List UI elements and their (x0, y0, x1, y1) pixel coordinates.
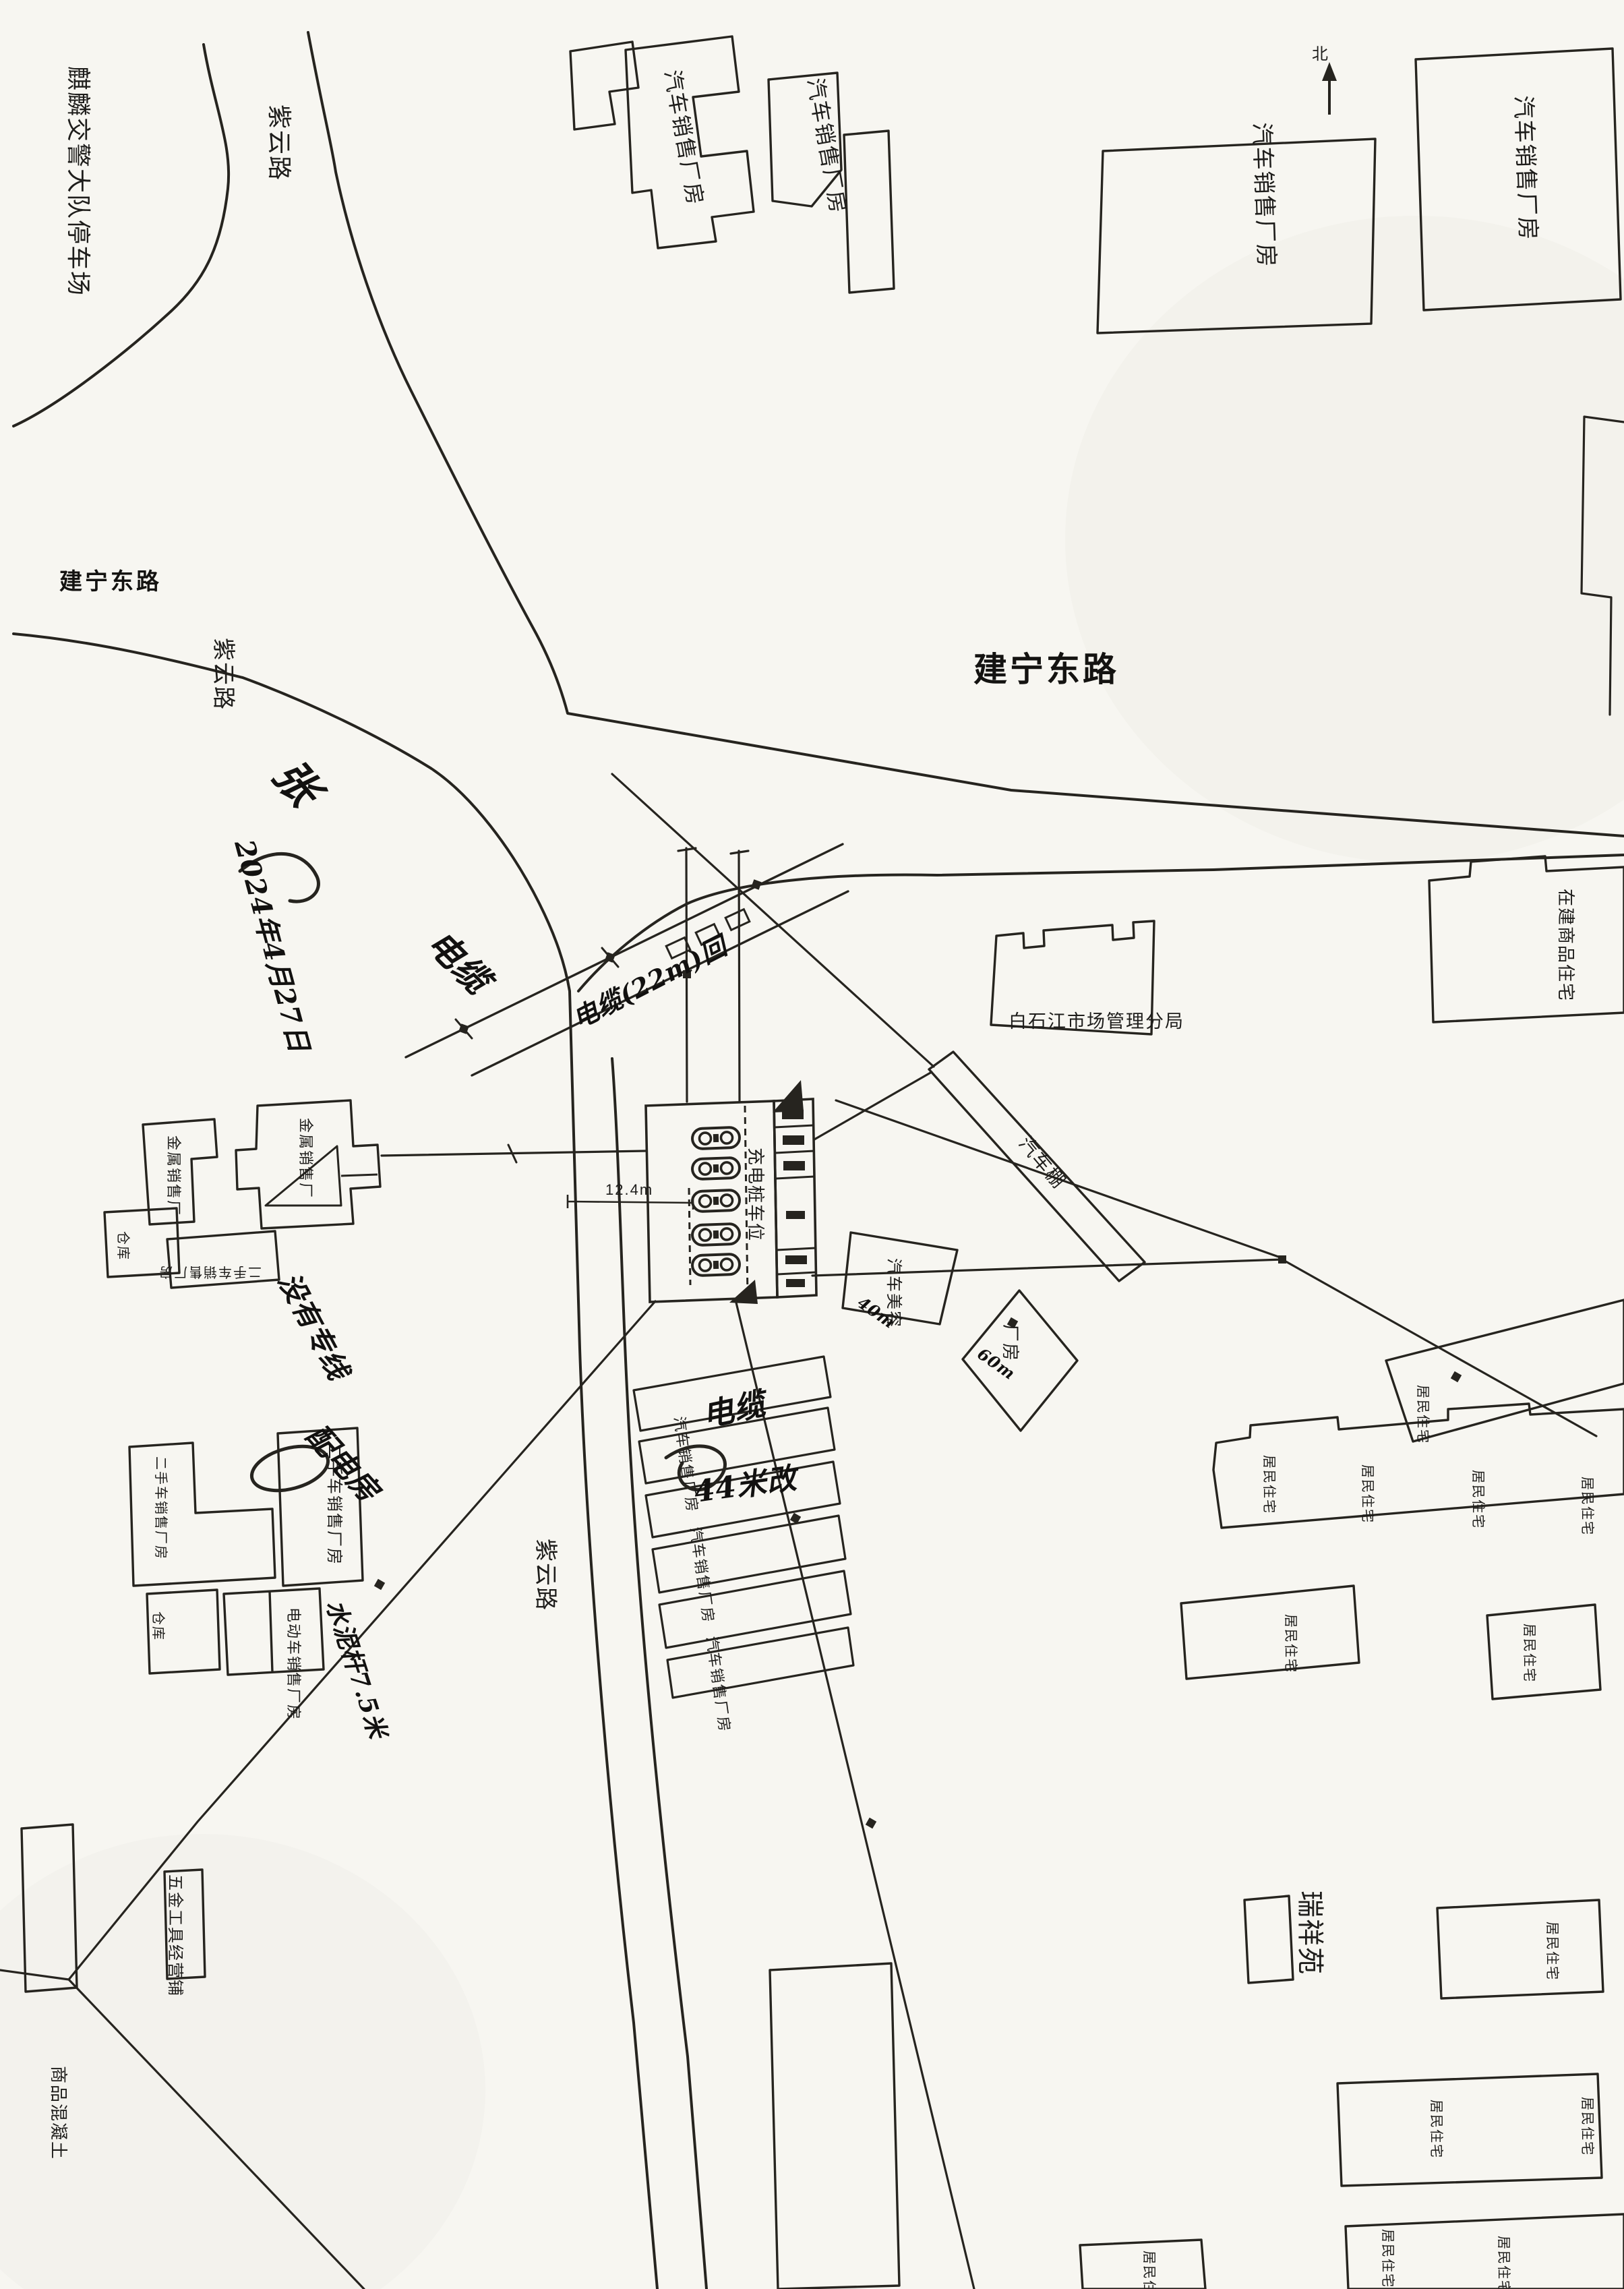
label-dimension-12-4m: 12.4m (605, 1181, 653, 1198)
label-hardware-tool-market: 五金工具经营铺 (166, 1874, 184, 1997)
label-resident-7: 居民住宅 (1522, 1624, 1537, 1683)
label-warehouse-2: 仓库 (150, 1611, 166, 1641)
label-resident-9: 居民住宅 (1428, 2100, 1444, 2159)
scanned-site-plan-page: 麒麟交警大队停车场紫云路紫云路紫云路汽车销售厂房汽车销售厂房汽车销售厂房汽车销售… (0, 0, 1624, 2289)
site-plan-canvas: 麒麟交警大队停车场紫云路紫云路紫云路汽车销售厂房汽车销售厂房汽车销售厂房汽车销售… (0, 0, 1624, 2289)
label-resident-3: 居民住宅 (1360, 1464, 1375, 1524)
label-ziyun-road-north: 紫云路 (266, 105, 293, 181)
label-jianning-east-road-west: 建宁东路 (59, 568, 162, 595)
label-commercial-concrete: 商品混凝土 (49, 2066, 69, 2160)
label-resident-10: 居民住宅 (1580, 2097, 1595, 2156)
label-resident-6: 居民住宅 (1283, 1614, 1298, 1673)
label-usedcar-sales-flipped: 二手车销售厂房 (158, 1264, 262, 1280)
label-resident-11: 居民住宅 (1380, 2229, 1395, 2288)
label-qilin-police-parking: 麒麟交警大队停车场 (65, 66, 92, 297)
label-ruixiangyuan: 瑞祥苑 (1295, 1891, 1325, 1975)
label-metal-sales-1: 金属销售厂 (165, 1135, 182, 1216)
label-auto-sales-factory-3: 汽车销售厂房 (1249, 122, 1280, 268)
label-ebike-sales: 电动车销售厂房 (285, 1607, 302, 1721)
label-ziyun-road-south: 紫云路 (533, 1539, 558, 1611)
label-resident-12: 居民住宅 (1496, 2236, 1511, 2289)
label-resident-1: 居民住宅 (1415, 1385, 1431, 1444)
label-resident-4: 居民住宅 (1470, 1470, 1486, 1529)
label-resident-5: 居民住宅 (1580, 1477, 1595, 1536)
label-baishijiang-market-bureau: 白石江市场管理分局 (1009, 1011, 1184, 1032)
label-auto-sales-factory-4: 汽车销售厂房 (1510, 95, 1541, 241)
label-metal-sales-2: 金属销售厂 (297, 1118, 314, 1199)
label-resident-8: 居民住宅 (1544, 1922, 1560, 1981)
label-usedcar-sales-L: 二手车销售厂房 (153, 1456, 169, 1560)
label-north-char: 北 (1312, 45, 1329, 63)
label-ziyun-road-mid: 紫云路 (210, 638, 236, 711)
label-warehouse-1: 仓库 (115, 1231, 131, 1261)
label-charging-bays: 充电桩车位 (746, 1148, 766, 1242)
label-under-construction-housing: 在建商品住宅 (1556, 889, 1576, 1002)
label-resident-13: 居民住宅 (1141, 2251, 1157, 2289)
label-jianning-east-road-east: 建宁东路 (973, 651, 1119, 688)
label-resident-2: 居民住宅 (1261, 1455, 1277, 1514)
